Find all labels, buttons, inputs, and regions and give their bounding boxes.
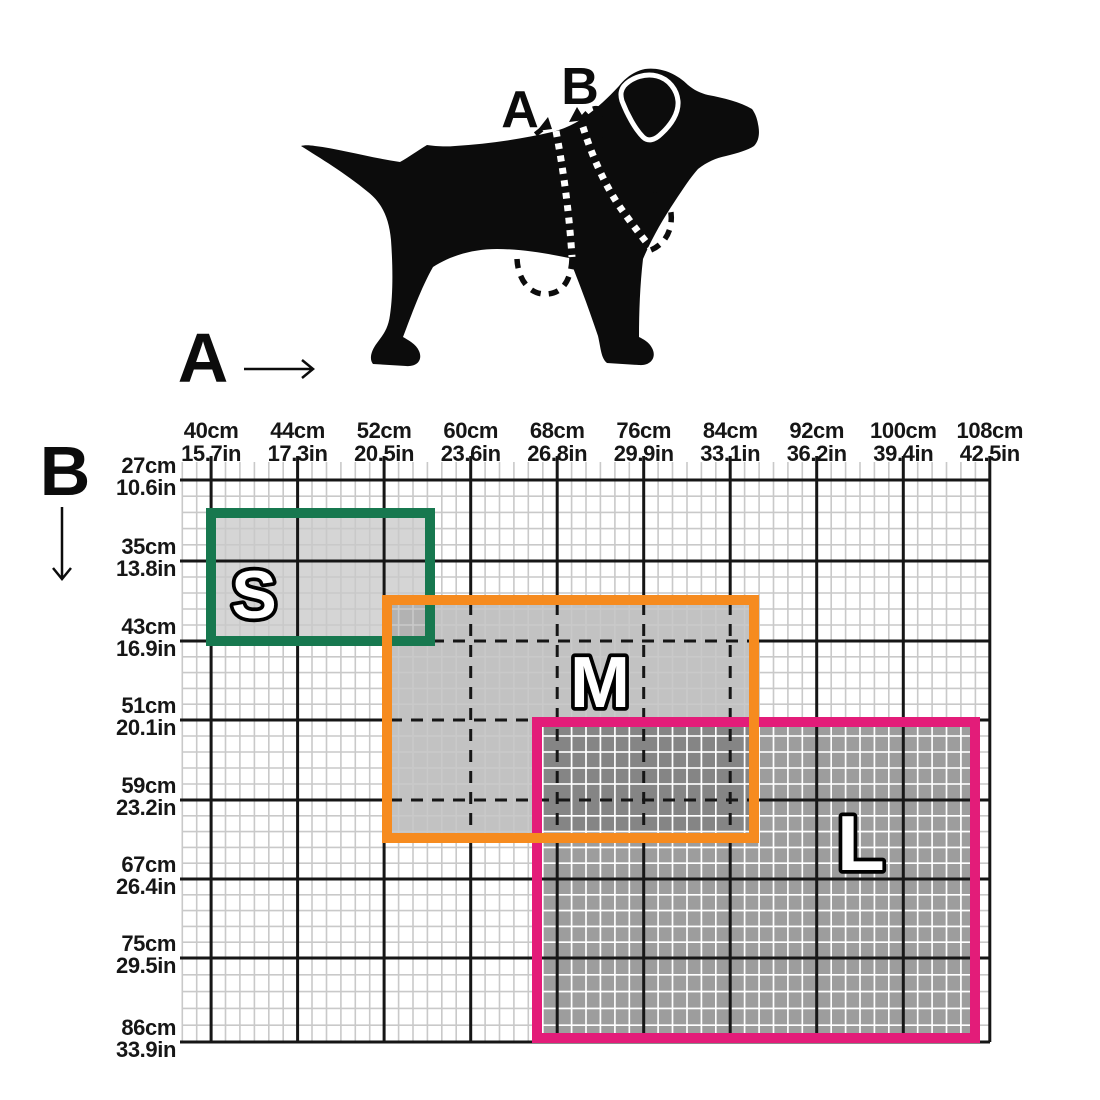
x-tick-label: 52cm <box>357 418 412 443</box>
y-tick-label: 16.9in <box>116 636 176 661</box>
overlap-m-l <box>537 722 754 838</box>
x-tick-label: 20.5in <box>354 441 414 466</box>
axis-a-header: A <box>178 319 313 397</box>
size-grid: SML40cm15.7in44cm17.3in52cm20.5in60cm23.… <box>116 418 1023 1062</box>
axis-b-arrow-icon <box>53 507 71 579</box>
measure-b-label: B <box>561 58 599 116</box>
y-tick-label: 10.6in <box>116 475 176 500</box>
y-tick-label: 29.5in <box>116 953 176 978</box>
size-letter-M: M <box>570 643 630 723</box>
x-tick-label: 68cm <box>530 418 585 443</box>
axis-b-header: B <box>40 432 91 579</box>
measure-a-label: A <box>501 81 539 139</box>
x-tick-label: 42.5in <box>960 441 1020 466</box>
axis-a-arrow-icon <box>244 360 313 378</box>
x-tick-label: 92cm <box>789 418 844 443</box>
x-tick-label: 84cm <box>703 418 758 443</box>
x-tick-label: 15.7in <box>181 441 241 466</box>
x-tick-label: 60cm <box>443 418 498 443</box>
chest-girth-loop-under-belly <box>517 259 572 294</box>
chest-girth-arrowhead-icon <box>537 117 552 131</box>
x-tick-label: 100cm <box>870 418 937 443</box>
axis-b-label: B <box>40 432 91 510</box>
size-chart-canvas: A B A B SML40cm15.7in44cm17.3in52cm20.5i… <box>0 0 1100 1100</box>
x-tick-label: 76cm <box>616 418 671 443</box>
y-tick-label: 23.2in <box>116 795 176 820</box>
x-tick-label: 108cm <box>957 418 1024 443</box>
axis-a-label: A <box>178 319 229 397</box>
x-tick-label: 23.6in <box>441 441 501 466</box>
x-tick-label: 36.2in <box>787 441 847 466</box>
size-letter-S: S <box>231 557 276 633</box>
x-tick-label: 17.3in <box>268 441 328 466</box>
y-tick-label: 33.9in <box>116 1037 176 1062</box>
dog-harness-size-chart: A B A B SML40cm15.7in44cm17.3in52cm20.5i… <box>0 0 1100 1100</box>
size-letter-L: L <box>837 799 885 887</box>
x-tick-label: 33.1in <box>700 441 760 466</box>
y-tick-label: 26.4in <box>116 874 176 899</box>
x-tick-label: 39.4in <box>873 441 933 466</box>
overlap-s-m <box>387 600 430 641</box>
x-tick-label: 29.9in <box>614 441 674 466</box>
y-tick-label: 20.1in <box>116 715 176 740</box>
x-tick-label: 40cm <box>184 418 239 443</box>
x-tick-label: 26.8in <box>527 441 587 466</box>
dog-illustration: A B <box>301 58 759 366</box>
x-tick-label: 44cm <box>270 418 325 443</box>
y-tick-label: 13.8in <box>116 556 176 581</box>
